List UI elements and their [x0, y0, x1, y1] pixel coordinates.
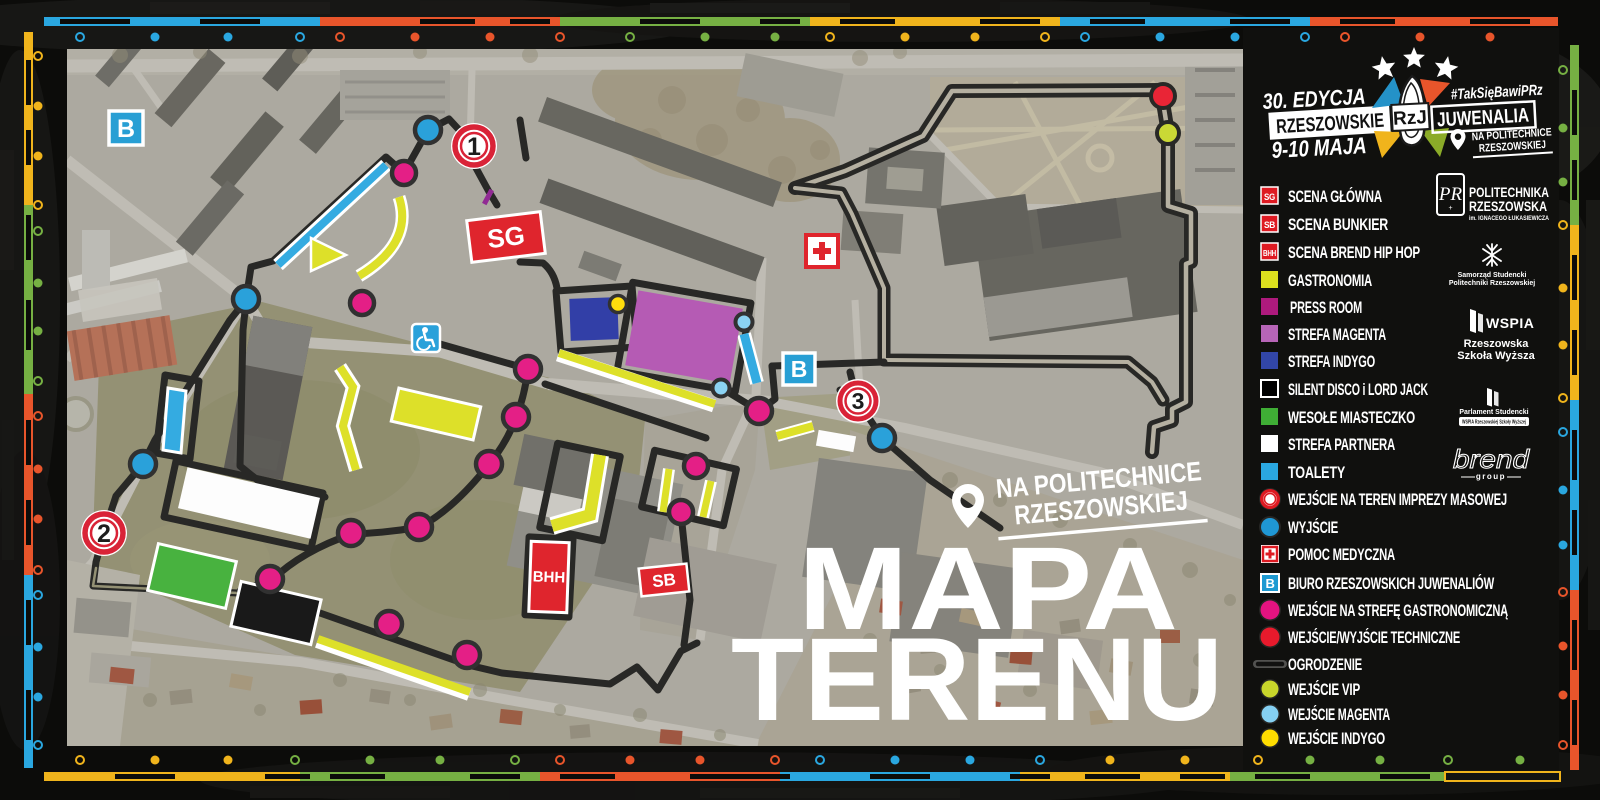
svg-text:WEJŚCIE NA STREFĘ GASTRONOMICZ: WEJŚCIE NA STREFĘ GASTRONOMICZNĄ	[1288, 601, 1508, 620]
svg-text:WEJŚCIE INDYGO: WEJŚCIE INDYGO	[1288, 729, 1385, 748]
svg-text:SCENA GŁÓWNA: SCENA GŁÓWNA	[1288, 187, 1382, 206]
svg-text:SG: SG	[1264, 192, 1275, 202]
svg-text:SCENA BUNKIER: SCENA BUNKIER	[1288, 216, 1388, 234]
svg-text:im. IGNACEGO ŁUKASIEWICZA: im. IGNACEGO ŁUKASIEWICZA	[1469, 215, 1549, 222]
svg-text:WSPIA Rzeszowskiej Szkoły Wyżs: WSPIA Rzeszowskiej Szkoły Wyższej	[1462, 420, 1526, 426]
svg-text:WEJŚCIE MAGENTA: WEJŚCIE MAGENTA	[1288, 705, 1390, 724]
svg-text:9-10 MAJA: 9-10 MAJA	[1271, 132, 1367, 163]
svg-text:WSPIA: WSPIA	[1486, 315, 1534, 331]
svg-text:SILENT DISCO i LORD JACK: SILENT DISCO i LORD JACK	[1288, 381, 1428, 399]
svg-text:OGRODZENIE: OGRODZENIE	[1288, 656, 1362, 674]
svg-text:B: B	[1266, 576, 1275, 591]
svg-text:PRESS ROOM: PRESS ROOM	[1290, 299, 1362, 317]
svg-text:Politechniki Rzeszowskiej: Politechniki Rzeszowskiej	[1449, 280, 1535, 287]
svg-text:brend: brend	[1453, 444, 1531, 474]
svg-text:PR: PR	[1438, 184, 1463, 205]
svg-text:WESOŁE MIASTECZKO: WESOŁE MIASTECZKO	[1288, 409, 1415, 427]
svg-text:Samorząd Studencki: Samorząd Studencki	[1458, 272, 1527, 279]
svg-text:group: group	[1476, 472, 1506, 481]
svg-text:WEJŚCIE VIP: WEJŚCIE VIP	[1288, 680, 1360, 699]
svg-text:STREFA PARTNERA: STREFA PARTNERA	[1288, 436, 1395, 454]
svg-text:WEJŚCIE/WYJŚCIE TECHNICZNE: WEJŚCIE/WYJŚCIE TECHNICZNE	[1288, 628, 1460, 647]
svg-text:POMOC MEDYCZNA: POMOC MEDYCZNA	[1288, 546, 1395, 564]
svg-text:STREFA MAGENTA: STREFA MAGENTA	[1288, 326, 1386, 344]
svg-text:WEJŚCIE NA TEREN IMPREZY MASOW: WEJŚCIE NA TEREN IMPREZY MASOWEJ	[1288, 490, 1507, 509]
svg-text:RzJ: RzJ	[1393, 107, 1428, 130]
svg-text:WYJŚCIE: WYJŚCIE	[1288, 518, 1338, 537]
svg-text:Parlament Studencki: Parlament Studencki	[1459, 409, 1528, 416]
svg-text:GASTRONOMIA: GASTRONOMIA	[1288, 272, 1372, 290]
svg-text:BHH: BHH	[1263, 249, 1276, 258]
svg-text:Rzeszowska: Rzeszowska	[1464, 338, 1530, 350]
svg-text:SB: SB	[1264, 220, 1276, 230]
svg-text:TOALETY: TOALETY	[1288, 464, 1345, 482]
svg-text:STREFA INDYGO: STREFA INDYGO	[1288, 353, 1375, 371]
svg-text:SCENA BREND HIP HOP: SCENA BREND HIP HOP	[1288, 244, 1420, 262]
svg-text:BIURO RZESZOWSKICH JUWENALIÓW: BIURO RZESZOWSKICH JUWENALIÓW	[1288, 574, 1494, 593]
svg-text:+: +	[1448, 205, 1452, 212]
svg-text:RZESZOWSKA: RZESZOWSKA	[1469, 199, 1547, 214]
svg-text:POLITECHNIKA: POLITECHNIKA	[1469, 185, 1549, 200]
svg-text:Szkoła Wyższa: Szkoła Wyższa	[1457, 350, 1535, 362]
